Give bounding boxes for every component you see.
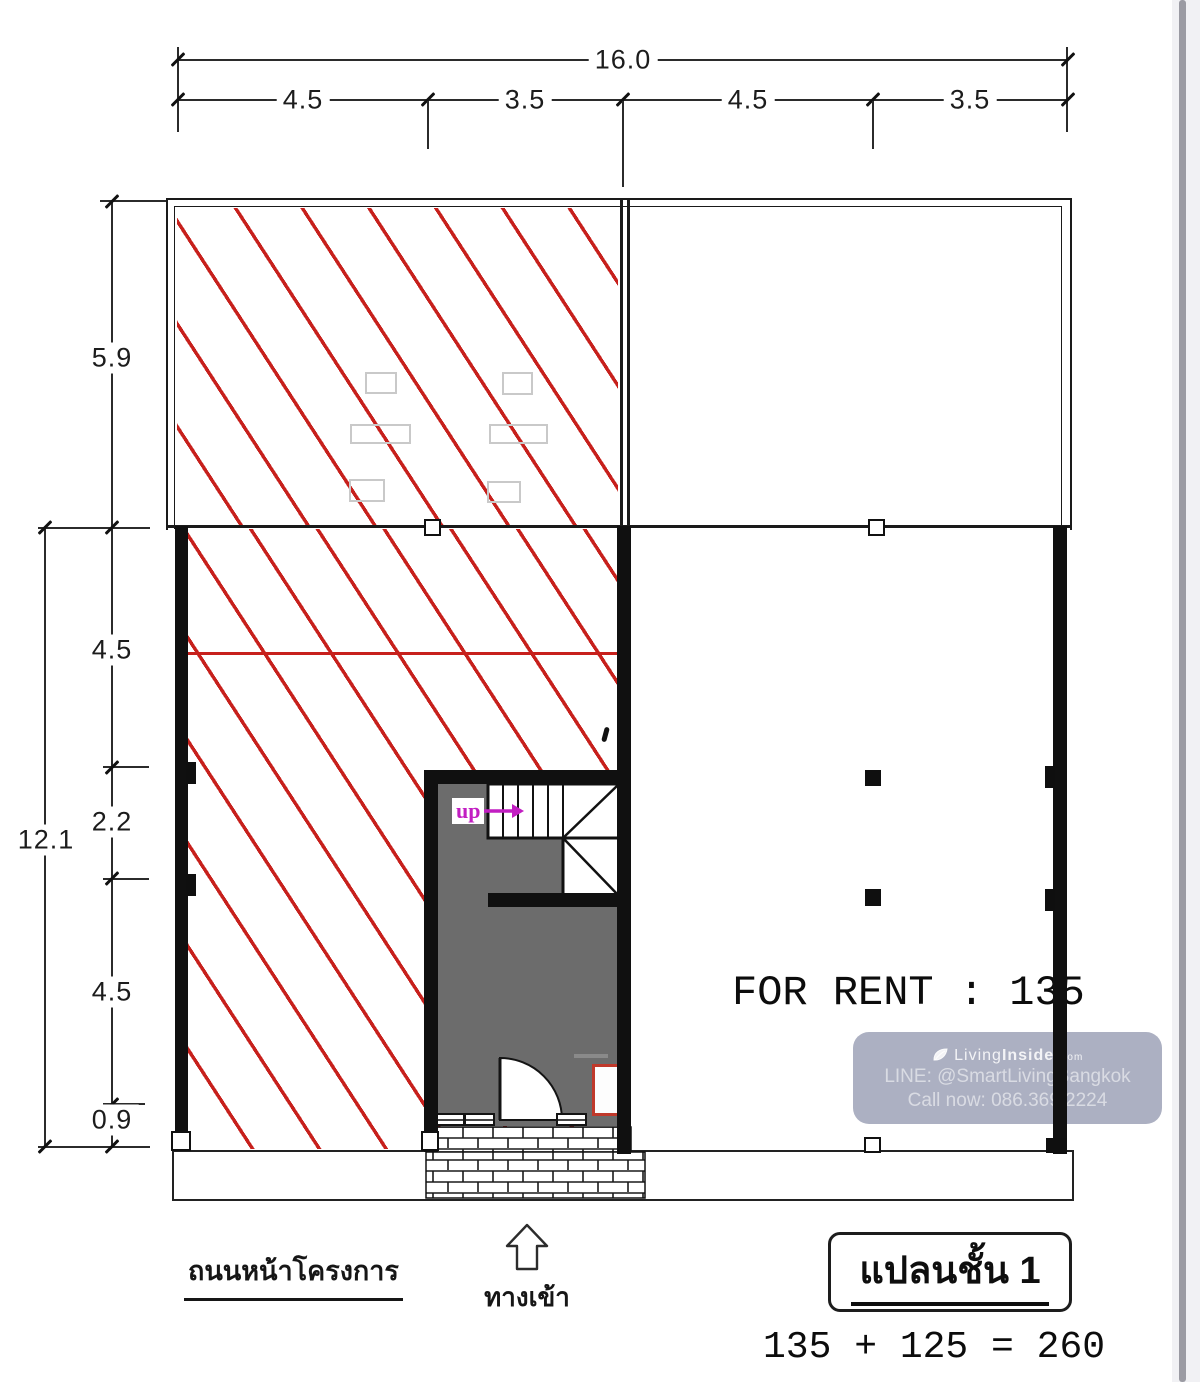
stair-direction-label: up bbox=[452, 798, 484, 824]
brick-paving bbox=[425, 1126, 649, 1200]
stair-up-arrow-icon bbox=[482, 800, 526, 822]
road-label: ถนนหน้าโครงการ bbox=[184, 1249, 403, 1301]
wall-mark bbox=[574, 1054, 608, 1058]
stair-stub-wall bbox=[488, 893, 631, 907]
dim-label-seg4: 3.5 bbox=[944, 85, 997, 116]
watermark-brand: LivingInsidercom bbox=[853, 1045, 1162, 1065]
furniture-outline bbox=[489, 424, 548, 444]
dim-label-5-9: 5.9 bbox=[86, 343, 139, 374]
balcony-divider-inner bbox=[627, 200, 630, 528]
stair-top-wall bbox=[424, 770, 631, 784]
left-wall bbox=[175, 526, 188, 1136]
watermark-line-contact: LINE: @SmartLivingBangkok bbox=[853, 1065, 1162, 1089]
dim-label-seg2: 3.5 bbox=[499, 85, 552, 116]
brand-light: Living bbox=[954, 1047, 1002, 1064]
furniture-outline bbox=[349, 479, 385, 502]
stair-left-wall bbox=[424, 770, 438, 1152]
area-equation: 135 + 125 = 260 bbox=[763, 1326, 1105, 1369]
threshold-sill bbox=[556, 1113, 587, 1126]
wall-column-bump bbox=[1045, 889, 1055, 911]
furniture-outline bbox=[365, 372, 397, 394]
dim-label-12-1: 12.1 bbox=[12, 825, 81, 856]
wall-column-bump bbox=[186, 762, 196, 784]
middle-wall bbox=[617, 526, 631, 1154]
leaf-icon bbox=[932, 1047, 949, 1062]
scrollbar-track[interactable] bbox=[1172, 0, 1200, 1382]
dim-label-0-9: 0.9 bbox=[86, 1105, 139, 1136]
column-marker bbox=[868, 519, 885, 536]
porch-column-marker bbox=[864, 1137, 881, 1153]
watermark-phone: Call now: 086.369.2224 bbox=[853, 1089, 1162, 1113]
dim-label-left-4-5b: 4.5 bbox=[86, 977, 139, 1008]
furniture-outline bbox=[487, 481, 521, 503]
entrance-arrow-icon bbox=[504, 1222, 550, 1274]
right-wall-foot bbox=[1046, 1138, 1067, 1153]
dim-label-2-2: 2.2 bbox=[86, 807, 139, 838]
right-wall bbox=[1053, 526, 1067, 1154]
free-column bbox=[865, 889, 881, 906]
dim-label-left-4-5a: 4.5 bbox=[86, 635, 139, 666]
wall-column-bump bbox=[186, 874, 196, 896]
floor-plan-page: 16.0 4.5 3.5 4.5 3.5 5.9 4.5 2.2 4.5 bbox=[0, 0, 1200, 1382]
scrollbar-thumb[interactable] bbox=[1179, 0, 1186, 1382]
threshold-sill bbox=[464, 1113, 495, 1126]
red-horizontal-line bbox=[188, 652, 618, 655]
free-column bbox=[865, 770, 881, 786]
wall-foot-marker bbox=[171, 1131, 191, 1151]
balcony-divider bbox=[620, 200, 623, 528]
dim-label-seg1: 4.5 bbox=[277, 85, 330, 116]
balcony-outline-inner bbox=[174, 206, 1062, 529]
watermark-box: LivingInsidercom LINE: @SmartLivingBangk… bbox=[853, 1032, 1162, 1124]
wall-column-bump bbox=[1045, 766, 1055, 788]
entrance-label: ทางเข้า bbox=[484, 1277, 570, 1318]
furniture-outline bbox=[502, 372, 533, 395]
column-marker bbox=[424, 519, 441, 536]
plan-title: แปลนชั้น 1 bbox=[851, 1239, 1048, 1306]
for-rent-text: FOR RENT : 135 bbox=[732, 969, 1085, 1017]
dim-label-16-0: 16.0 bbox=[589, 45, 658, 76]
plan-title-box: แปลนชั้น 1 bbox=[828, 1232, 1072, 1312]
wall-foot-marker bbox=[421, 1131, 439, 1151]
furniture-outline bbox=[350, 424, 411, 444]
dim-label-seg3: 4.5 bbox=[722, 85, 775, 116]
